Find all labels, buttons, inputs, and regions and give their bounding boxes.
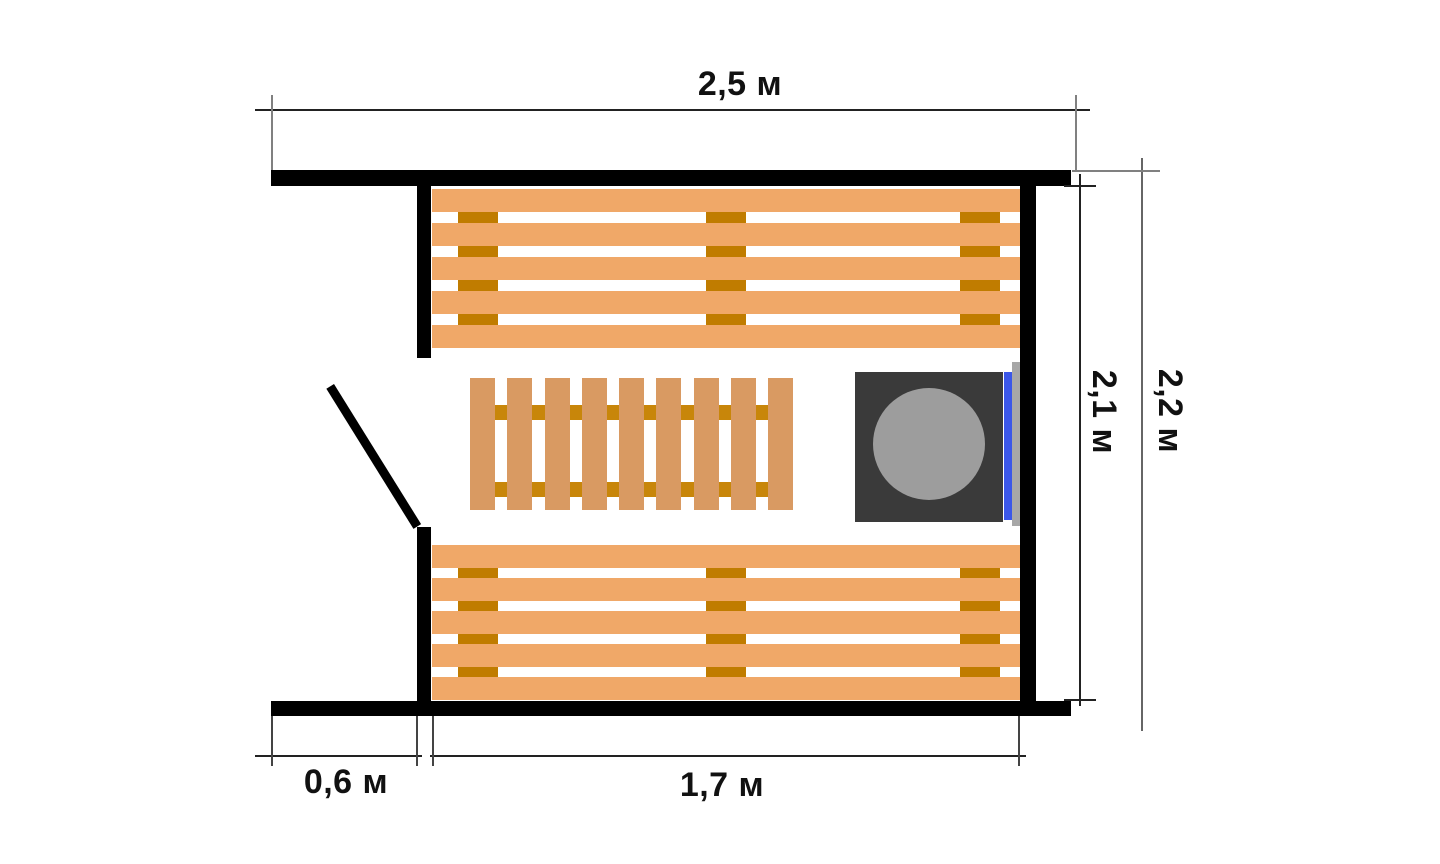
dimension-label-inner-height: 2,1 м [1086, 352, 1122, 472]
lower-bench [432, 545, 1020, 700]
extension-line [1018, 716, 1020, 766]
dimension-line-total-width [255, 109, 1090, 111]
dimension-line-inner-width [430, 755, 1026, 757]
bench-plank [432, 644, 1020, 667]
duckboard-slat [731, 378, 756, 510]
stove-stones [873, 388, 985, 500]
extension-line [271, 716, 273, 766]
right-wall [1020, 186, 1036, 701]
duckboard-slat [694, 378, 719, 510]
dimension-label-inner-width: 1,7 м [657, 767, 787, 803]
bench-plank [432, 291, 1020, 314]
dimension-tick [1064, 185, 1096, 187]
bench-plank [432, 677, 1020, 700]
duckboard-slat [507, 378, 532, 510]
duckboard-slat [582, 378, 607, 510]
dimension-line-inner-height [1079, 174, 1081, 706]
duckboard-slat [619, 378, 644, 510]
dimension-line-entry-width [255, 755, 422, 757]
door-leaf [326, 384, 421, 529]
stove-accent-strip [1004, 372, 1012, 520]
extension-line [432, 716, 434, 766]
dimension-label-entry-width: 0,6 м [281, 764, 411, 800]
duckboard-slat [656, 378, 681, 510]
dimension-label-total-width: 2,5 м [675, 66, 805, 102]
sauna-floor-plan: 2,5 м 2,1 м 2,2 м 0,6 м 1,7 м [0, 0, 1440, 864]
top-wall [271, 170, 1071, 186]
left-wall-lower [417, 527, 431, 701]
floor-duckboard [470, 378, 793, 510]
duckboard-slat [470, 378, 495, 510]
bench-plank [432, 611, 1020, 634]
duckboard-slat [768, 378, 793, 510]
dimension-tick [1064, 699, 1096, 701]
extension-line [271, 95, 273, 170]
duckboard-slat [545, 378, 570, 510]
dimension-label-total-height: 2,2 м [1152, 351, 1188, 471]
bench-plank [432, 325, 1020, 348]
left-wall-upper [417, 186, 431, 358]
extension-line [1075, 95, 1077, 170]
stove-grille-strip [1012, 362, 1020, 526]
bench-plank [432, 189, 1020, 212]
dimension-line-total-height [1141, 158, 1143, 731]
upper-bench [432, 189, 1020, 348]
bench-plank [432, 223, 1020, 246]
bench-plank [432, 545, 1020, 568]
stove [855, 372, 1003, 522]
extension-line [416, 716, 418, 766]
bottom-wall [271, 701, 1071, 716]
bench-plank [432, 257, 1020, 280]
bench-plank [432, 578, 1020, 601]
extension-line [1072, 170, 1160, 172]
